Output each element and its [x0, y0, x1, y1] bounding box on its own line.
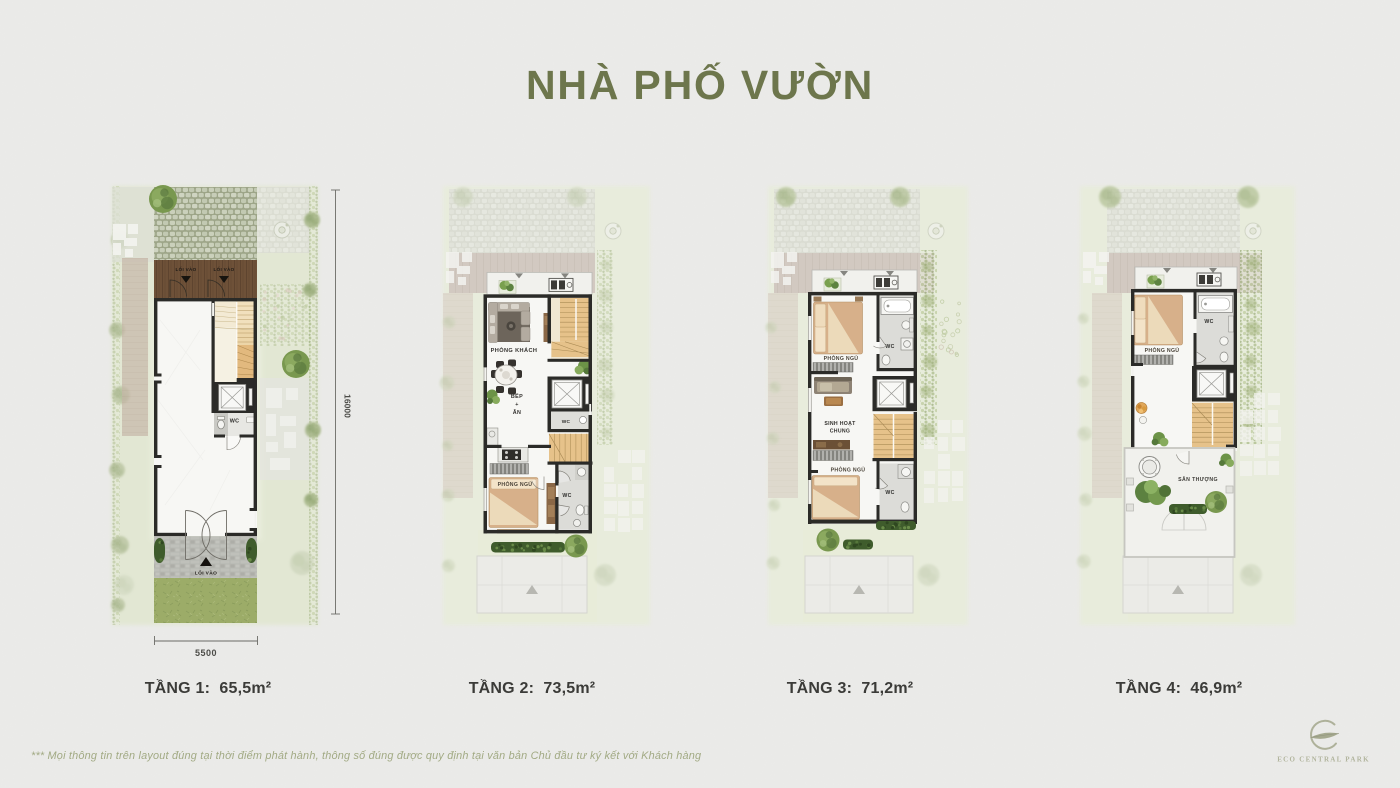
svg-text:WC: WC — [885, 344, 894, 350]
svg-text:CHUNG: CHUNG — [830, 429, 851, 435]
svg-text:16000: 16000 — [343, 394, 353, 418]
svg-text:5500: 5500 — [195, 648, 217, 658]
svg-text:PHÒNG NGỦ: PHÒNG NGỦ — [1145, 346, 1180, 354]
svg-text:SÂN THƯỢNG: SÂN THƯỢNG — [1178, 476, 1218, 483]
svg-text:PHÒNG NGỦ: PHÒNG NGỦ — [824, 354, 859, 362]
svg-text:ĂN: ĂN — [513, 409, 522, 416]
svg-text:WC: WC — [1204, 319, 1213, 325]
svg-text:LỐI VÀO: LỐI VÀO — [214, 266, 235, 272]
svg-text:NHÀ PHỐ VƯỜN: NHÀ PHỐ VƯỜN — [526, 62, 874, 108]
svg-text:PHÒNG NGỦ: PHÒNG NGỦ — [498, 480, 533, 488]
svg-text:LỐI VÀO: LỐI VÀO — [176, 266, 197, 272]
svg-text:WC: WC — [562, 493, 571, 499]
svg-text:+: + — [515, 402, 519, 408]
svg-text:PHÒNG KHÁCH: PHÒNG KHÁCH — [491, 346, 538, 354]
svg-text:TẦNG 4: 46,9m²: TẦNG 4: 46,9m² — [1116, 678, 1243, 697]
svg-text:PHÒNG NGỦ: PHÒNG NGỦ — [831, 466, 866, 474]
svg-text:SINH HOẠT: SINH HOẠT — [824, 421, 856, 427]
svg-text:TẦNG 2: 73,5m²: TẦNG 2: 73,5m² — [469, 678, 596, 697]
svg-text:LỐI VÀO: LỐI VÀO — [195, 570, 218, 577]
svg-text:TẦNG 1: 65,5m²: TẦNG 1: 65,5m² — [145, 678, 272, 697]
svg-text:WC: WC — [885, 490, 894, 496]
svg-text:*** Mọi thông tin trên layout: *** Mọi thông tin trên layout đúng tại t… — [31, 750, 701, 762]
svg-text:WC: WC — [230, 419, 240, 425]
svg-text:ECO CENTRAL PARK: ECO CENTRAL PARK — [1277, 756, 1370, 764]
svg-text:BẾP: BẾP — [511, 393, 523, 400]
svg-text:TẦNG 3: 71,2m²: TẦNG 3: 71,2m² — [787, 678, 914, 697]
svg-text:WC: WC — [562, 419, 571, 425]
